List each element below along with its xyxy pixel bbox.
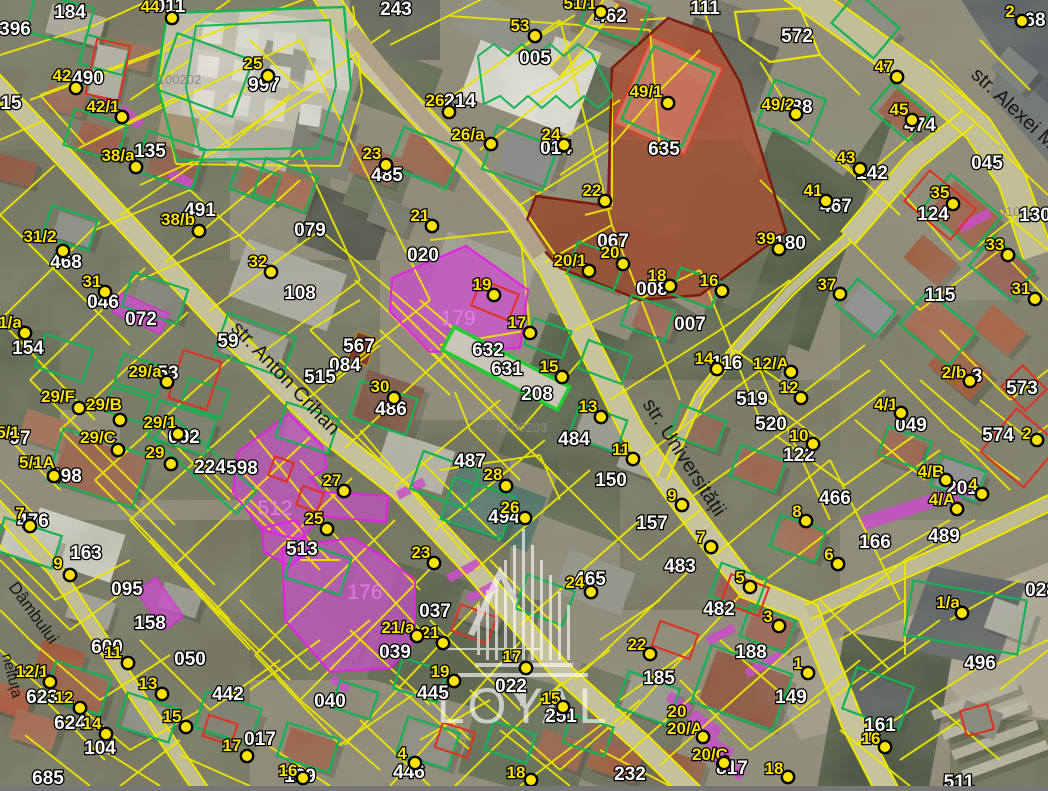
svg-text:12/1: 12/1 bbox=[15, 662, 48, 681]
svg-text:515: 515 bbox=[304, 367, 336, 388]
svg-text:39: 39 bbox=[757, 229, 776, 248]
svg-text:007: 007 bbox=[674, 314, 706, 335]
svg-text:53: 53 bbox=[511, 16, 530, 35]
svg-text:635: 635 bbox=[648, 139, 680, 160]
svg-text:7: 7 bbox=[15, 504, 24, 523]
svg-text:0100202: 0100202 bbox=[151, 72, 202, 87]
svg-text:23: 23 bbox=[412, 543, 431, 562]
svg-text:25: 25 bbox=[305, 509, 324, 528]
svg-text:396: 396 bbox=[0, 19, 31, 40]
svg-text:028: 028 bbox=[1025, 580, 1048, 601]
svg-text:623: 623 bbox=[26, 687, 58, 708]
svg-text:26/a: 26/a bbox=[451, 125, 485, 144]
svg-text:47: 47 bbox=[875, 57, 894, 76]
svg-text:050: 050 bbox=[174, 649, 206, 670]
svg-text:30: 30 bbox=[371, 377, 390, 396]
svg-text:487: 487 bbox=[454, 451, 486, 472]
svg-text:188: 188 bbox=[735, 642, 767, 663]
svg-text:079: 079 bbox=[294, 220, 326, 241]
svg-text:29/F: 29/F bbox=[41, 387, 75, 406]
svg-text:489: 489 bbox=[928, 526, 960, 547]
svg-text:573: 573 bbox=[1006, 378, 1038, 399]
svg-text:040: 040 bbox=[314, 691, 346, 712]
svg-text:5/1A: 5/1A bbox=[19, 453, 55, 472]
svg-text:154: 154 bbox=[12, 338, 44, 359]
svg-text:2/b: 2/b bbox=[942, 363, 967, 382]
svg-text:18: 18 bbox=[648, 266, 667, 285]
svg-text:17: 17 bbox=[223, 736, 242, 755]
svg-text:184: 184 bbox=[54, 2, 86, 23]
svg-text:20/1: 20/1 bbox=[553, 251, 586, 270]
svg-text:511: 511 bbox=[944, 772, 975, 786]
svg-text:0100203: 0100203 bbox=[497, 420, 548, 435]
svg-text:29/C: 29/C bbox=[80, 428, 116, 447]
svg-text:4: 4 bbox=[397, 744, 407, 763]
svg-text:149: 149 bbox=[775, 687, 807, 708]
svg-text:445: 445 bbox=[417, 683, 449, 704]
svg-text:15: 15 bbox=[163, 707, 182, 726]
svg-text:25: 25 bbox=[244, 54, 263, 73]
svg-text:23: 23 bbox=[363, 144, 382, 163]
svg-text:38/b: 38/b bbox=[161, 210, 195, 229]
svg-text:572: 572 bbox=[781, 26, 813, 47]
svg-text:111: 111 bbox=[690, 0, 720, 19]
svg-text:19: 19 bbox=[431, 662, 450, 681]
svg-text:20: 20 bbox=[601, 243, 620, 262]
svg-text:14: 14 bbox=[83, 714, 102, 733]
svg-text:130: 130 bbox=[1019, 205, 1048, 226]
svg-text:16: 16 bbox=[700, 271, 719, 290]
svg-text:567: 567 bbox=[343, 336, 375, 357]
svg-text:3: 3 bbox=[763, 607, 772, 626]
svg-text:51/1: 51/1 bbox=[563, 0, 596, 13]
svg-text:31: 31 bbox=[1012, 279, 1031, 298]
svg-text:574: 574 bbox=[982, 425, 1014, 446]
svg-text:115: 115 bbox=[925, 285, 956, 306]
svg-text:2: 2 bbox=[1005, 2, 1014, 21]
svg-text:38/a: 38/a bbox=[101, 146, 135, 165]
svg-text:41: 41 bbox=[804, 181, 823, 200]
svg-text:005: 005 bbox=[519, 48, 551, 69]
svg-text:124: 124 bbox=[917, 204, 949, 225]
svg-text:29: 29 bbox=[146, 443, 165, 462]
svg-text:12: 12 bbox=[55, 688, 74, 707]
svg-text:29/B: 29/B bbox=[86, 395, 122, 414]
svg-text:496: 496 bbox=[964, 653, 996, 674]
svg-text:179: 179 bbox=[440, 307, 475, 330]
svg-text:42/1: 42/1 bbox=[86, 97, 119, 116]
svg-text:135: 135 bbox=[134, 141, 166, 162]
svg-text:45: 45 bbox=[890, 100, 909, 119]
svg-text:512: 512 bbox=[257, 497, 292, 520]
svg-text:020: 020 bbox=[407, 245, 439, 266]
svg-text:484: 484 bbox=[558, 429, 590, 450]
svg-text:108: 108 bbox=[284, 283, 316, 304]
svg-text:598: 598 bbox=[226, 458, 258, 479]
svg-text:15: 15 bbox=[540, 357, 559, 376]
svg-text:18: 18 bbox=[507, 763, 526, 782]
svg-text:232: 232 bbox=[614, 764, 646, 785]
svg-text:13: 13 bbox=[139, 674, 158, 693]
svg-text:520: 520 bbox=[755, 414, 787, 435]
svg-text:017: 017 bbox=[244, 729, 276, 750]
svg-text:9: 9 bbox=[53, 554, 62, 573]
svg-text:185: 185 bbox=[643, 668, 675, 689]
svg-text:208: 208 bbox=[521, 384, 553, 405]
svg-text:43: 43 bbox=[837, 148, 856, 167]
svg-text:22: 22 bbox=[583, 181, 602, 200]
svg-text:5/1: 5/1 bbox=[0, 423, 20, 442]
svg-text:44: 44 bbox=[141, 0, 160, 16]
svg-text:16: 16 bbox=[279, 761, 298, 780]
svg-text:12/A: 12/A bbox=[753, 354, 789, 373]
svg-text:037: 037 bbox=[419, 601, 451, 622]
svg-text:29/a: 29/a bbox=[128, 362, 162, 381]
svg-text:31/2: 31/2 bbox=[23, 227, 56, 246]
svg-text:045: 045 bbox=[971, 153, 1003, 174]
svg-text:157: 157 bbox=[636, 513, 668, 534]
svg-text:163: 163 bbox=[70, 543, 102, 564]
svg-text:49/1: 49/1 bbox=[629, 82, 662, 101]
svg-text:35: 35 bbox=[931, 183, 950, 202]
svg-text:482: 482 bbox=[703, 599, 735, 620]
svg-text:632: 632 bbox=[472, 340, 504, 361]
svg-text:104: 104 bbox=[84, 738, 116, 759]
svg-text:16: 16 bbox=[862, 729, 881, 748]
svg-text:32: 32 bbox=[249, 252, 268, 271]
svg-text:442: 442 bbox=[212, 684, 244, 705]
svg-text:42: 42 bbox=[53, 66, 72, 85]
svg-text:59: 59 bbox=[217, 331, 238, 352]
svg-text:466: 466 bbox=[819, 488, 851, 509]
svg-text:13: 13 bbox=[579, 397, 598, 416]
svg-text:28: 28 bbox=[484, 465, 503, 484]
svg-text:18: 18 bbox=[765, 759, 784, 778]
svg-text:15: 15 bbox=[0, 93, 22, 114]
svg-text:224: 224 bbox=[194, 457, 226, 478]
svg-text:176: 176 bbox=[347, 581, 382, 604]
svg-text:631: 631 bbox=[491, 359, 523, 380]
svg-text:685: 685 bbox=[32, 768, 64, 786]
svg-text:17: 17 bbox=[508, 313, 527, 332]
svg-text:26: 26 bbox=[501, 498, 520, 517]
svg-text:24: 24 bbox=[566, 573, 585, 592]
svg-text:519: 519 bbox=[736, 389, 768, 410]
svg-text:039: 039 bbox=[379, 642, 411, 663]
svg-text:072: 072 bbox=[125, 309, 157, 330]
svg-text:483: 483 bbox=[664, 556, 696, 577]
svg-text:166: 166 bbox=[859, 532, 891, 553]
svg-text:624: 624 bbox=[54, 713, 86, 734]
svg-text:17: 17 bbox=[503, 647, 522, 666]
svg-text:31: 31 bbox=[83, 272, 102, 291]
svg-text:095: 095 bbox=[111, 579, 143, 600]
svg-text:33: 33 bbox=[986, 235, 1005, 254]
svg-text:158: 158 bbox=[134, 613, 166, 634]
svg-text:29/1: 29/1 bbox=[143, 413, 176, 432]
svg-text:150: 150 bbox=[595, 470, 627, 491]
svg-text:022: 022 bbox=[495, 676, 527, 697]
svg-text:513: 513 bbox=[286, 539, 318, 560]
svg-text:243: 243 bbox=[380, 0, 412, 20]
svg-text:26: 26 bbox=[426, 91, 445, 110]
svg-text:10: 10 bbox=[790, 426, 809, 445]
svg-text:11: 11 bbox=[104, 643, 122, 662]
